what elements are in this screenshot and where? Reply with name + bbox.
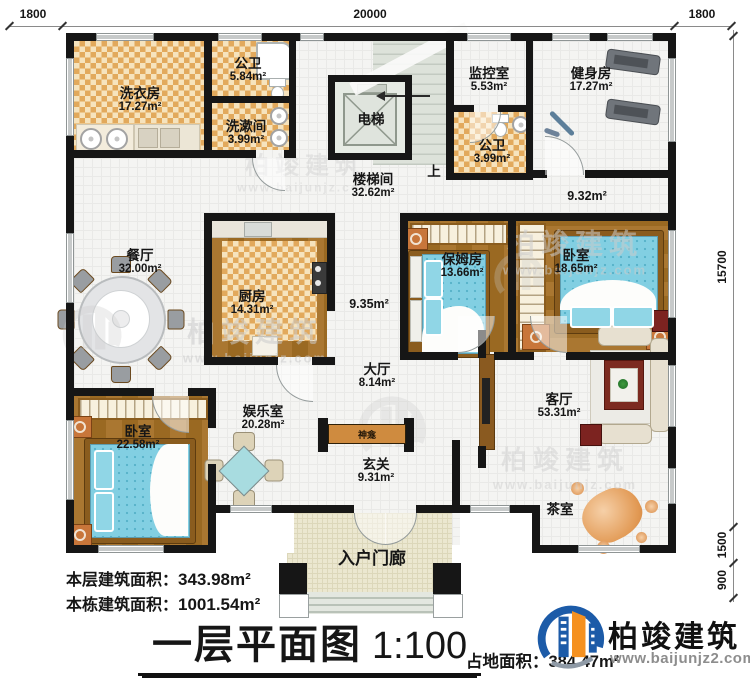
wall-bedrooms-top [400, 213, 676, 221]
wall-interior [208, 464, 216, 513]
window [218, 33, 262, 41]
floor-area-value: 343.98m² [178, 570, 251, 589]
bed-sheet [150, 444, 188, 536]
dim-tick [727, 21, 736, 30]
window [66, 58, 74, 136]
room-label-tea: 茶室 [547, 501, 574, 519]
room-label-washroom: 洗漱间3.99m² [226, 119, 267, 147]
headboard [410, 256, 422, 298]
pillow [94, 492, 114, 532]
room-label-dining: 餐厅32.00m² [119, 248, 162, 276]
wall-interior [66, 150, 256, 158]
window [467, 33, 511, 41]
pillow [612, 306, 654, 328]
wall-interior [566, 352, 676, 360]
porch-column [279, 563, 307, 594]
room-label-gym: 健身房17.27m² [570, 66, 613, 94]
window [470, 505, 510, 513]
window [552, 33, 590, 41]
washing-machine [80, 128, 102, 150]
wall-foyer-living [452, 440, 460, 513]
wall-shrine-stub [318, 418, 328, 452]
company-logo-icon [536, 602, 608, 674]
stove-burner [315, 266, 321, 272]
dining-chair [111, 366, 131, 383]
window [96, 33, 154, 41]
right-dimension-line [733, 30, 734, 602]
wall-bedroom-left-top [66, 388, 154, 396]
dining-chair [168, 310, 185, 330]
window [98, 545, 164, 553]
room-label-stairwell: 楼梯间32.62m² [352, 172, 395, 200]
room-label-living: 客厅53.31m² [538, 392, 581, 420]
room-label-hall: 大厅8.14m² [359, 362, 395, 390]
watermark-logo-icon [492, 248, 548, 304]
window [668, 365, 676, 427]
sink [270, 129, 288, 147]
window [668, 230, 676, 318]
company-logo-url: www.baijunjz2.com [610, 650, 750, 667]
room-label-elevator: 电梯 [358, 111, 385, 129]
floor-plan-canvas: 1800 20000 1800 15700 1500 900 [0, 0, 750, 683]
shrine-label: 神龛 [358, 428, 376, 441]
wall-kitchen [327, 213, 335, 311]
plant [618, 379, 628, 389]
wall-kitchen [204, 213, 212, 365]
room-label-kitchen: 厨房14.31m² [231, 289, 274, 317]
window [668, 468, 676, 504]
area-label-corridor-right: 9.32m² [567, 189, 607, 203]
wall-elevator [328, 75, 335, 160]
porch-column [433, 563, 461, 594]
wall-entry-left [294, 505, 354, 513]
wall-tv-stub [478, 446, 486, 468]
window [66, 233, 74, 303]
window [230, 505, 272, 513]
tv-screen [482, 378, 490, 424]
window [668, 58, 676, 142]
plan-title-text: 一层平面图 [152, 612, 362, 670]
wall-interior [508, 213, 516, 360]
laundry-basket [160, 128, 180, 148]
wall-elevator [328, 153, 412, 160]
dim-right-porch: 900 [715, 570, 729, 590]
dim-top-center: 20000 [353, 7, 386, 21]
tea-stool [636, 532, 647, 543]
top-dimension-line [9, 26, 731, 27]
pillow [94, 450, 114, 490]
window [607, 33, 653, 41]
room-label-bath2: 公卫3.99m² [474, 138, 510, 166]
dim-right-tea: 1500 [715, 532, 729, 559]
room-label-bedroom-left: 卧室22.58m² [117, 424, 160, 452]
wall-kitchen [312, 357, 335, 365]
wall-elevator [405, 75, 412, 160]
wall-interior [446, 173, 533, 180]
room-label-monitor: 监控室5.53m² [469, 66, 510, 94]
room-label-nanny: 保姆房13.66m² [441, 252, 484, 280]
sofa [598, 326, 652, 346]
plan-scale: 1:100 [372, 625, 467, 668]
wall-elevator [328, 75, 412, 82]
stairs-arrow-head [376, 91, 385, 101]
wall-nanny-left [400, 213, 408, 360]
wall-interior [400, 352, 458, 360]
kitchen-sink [244, 222, 272, 237]
dim-right-height: 15700 [715, 250, 729, 283]
dim-top-left: 1800 [20, 7, 47, 21]
sofa [598, 424, 652, 444]
headboard [410, 300, 422, 342]
side-table [580, 424, 602, 446]
exterior-mask [460, 513, 532, 553]
room-label-bedroom-right: 卧室18.65m² [555, 248, 598, 276]
wall-interior [446, 105, 474, 112]
laundry-basket [138, 128, 158, 148]
wall-interior [284, 150, 296, 158]
wall-entry-right [416, 505, 456, 513]
room-label-bath1: 公卫5.84m² [230, 56, 266, 84]
room-label-foyer: 玄关9.31m² [358, 457, 394, 485]
plan-title: 一层平面图 1:100 [138, 612, 481, 676]
wall-interior [585, 170, 676, 178]
wall-kitchen [204, 213, 335, 221]
wall-kitchen [204, 357, 278, 365]
washing-machine [106, 128, 128, 150]
dim-top-right: 1800 [689, 7, 716, 21]
tea-stool [645, 500, 658, 513]
window [578, 545, 640, 553]
floor-area-row: 本层建筑面积：343.98m² [66, 566, 251, 590]
room-label-laundry: 洗衣房17.27m² [119, 86, 162, 114]
wall-interior [526, 33, 533, 180]
room-label-entertainment: 娱乐室20.28m² [242, 404, 285, 432]
kitchen-cabinet [252, 336, 278, 356]
exterior-mask [216, 513, 294, 553]
shrine-cabinet: 神龛 [328, 424, 406, 444]
wall-interior [289, 33, 296, 158]
stairs-up-label: 上 [427, 163, 441, 181]
sink [270, 107, 288, 125]
room-label-porch: 入户门廊 [338, 549, 406, 569]
wall-interior [516, 352, 534, 360]
wall-interior [204, 96, 296, 103]
window [300, 33, 324, 41]
window [66, 420, 74, 500]
floor-area-label: 本层建筑面积： [66, 572, 178, 589]
tea-stool [571, 482, 584, 495]
wall-interior [208, 388, 216, 428]
area-label-corridor-mid: 9.35m² [349, 297, 389, 311]
pillow [570, 306, 612, 328]
pillow [424, 298, 443, 336]
stove-burner [315, 280, 321, 286]
porch-steps [307, 592, 435, 614]
